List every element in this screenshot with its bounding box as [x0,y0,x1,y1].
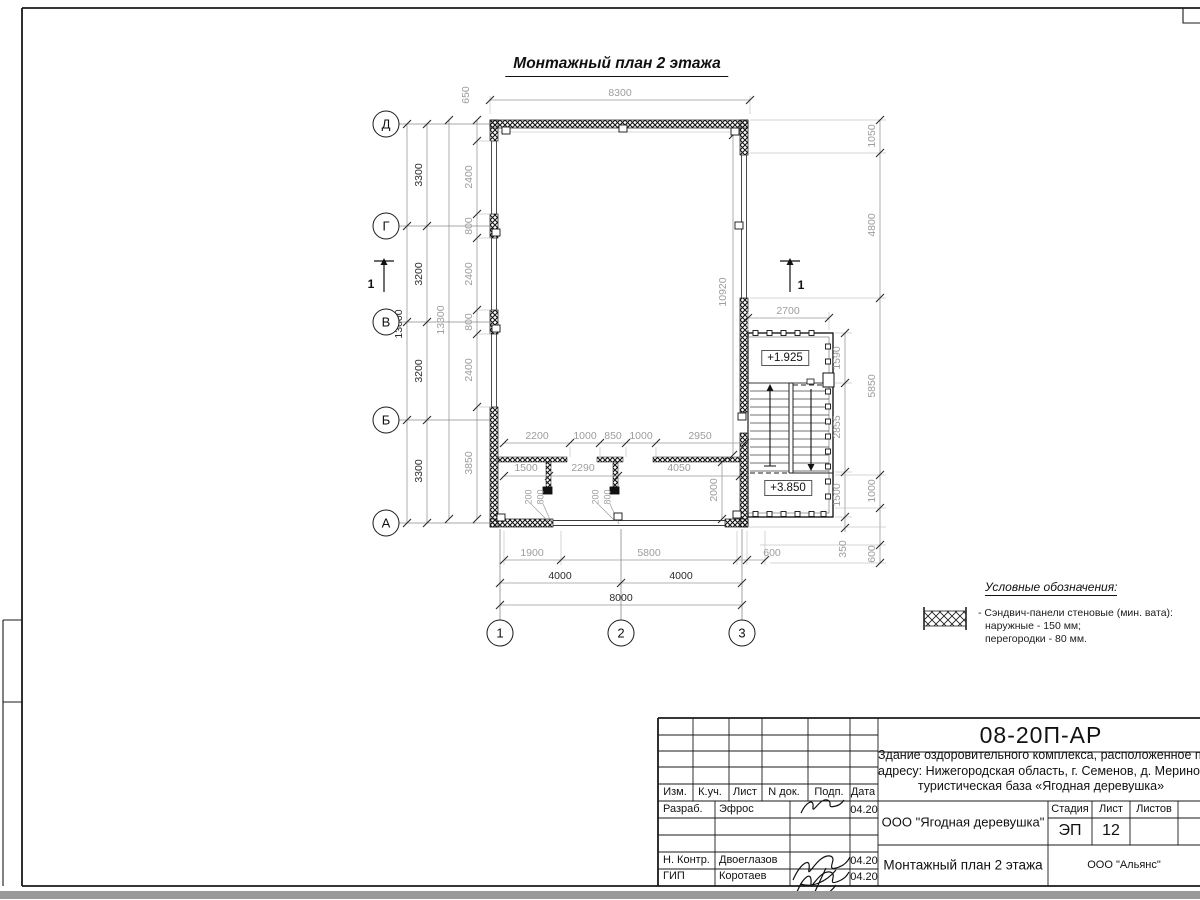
dim-label: 4050 [667,463,690,474]
dim-label: 2400 [464,262,475,285]
titleblock-header-cell: Дата [851,786,875,798]
description-line: адресу: Нижегородская область, г. Семено… [878,764,1200,780]
dim-label: 600 [763,548,781,559]
dim-label: 200 [592,489,601,504]
axis-bubble-left: А [373,510,400,537]
titleblock-description: Здание оздоровительного комплекса, распо… [878,748,1200,795]
legend-item: - Сэндвич-панели стеновые (мин. вата): [978,607,1173,619]
titleblock-name: Эфрос [719,803,754,815]
titleblock-role: Разраб. [663,803,703,815]
description-line: туристическая база «Ягодная деревушка» [878,779,1200,795]
dim-label: 1000 [573,431,596,442]
dim-label: 2400 [464,358,475,381]
legend-title: Условные обозначения: [985,580,1117,596]
titleblock-name: Двоеглазов [719,854,777,866]
dim-label: 1050 [867,124,878,147]
dim-label: 2400 [464,165,475,188]
titleblock-stage-label: Лист [1099,803,1123,815]
dim-label: 1000 [867,479,878,502]
axis-bubble-left: Д [373,111,400,138]
page-edge-strip [0,891,1200,899]
drawing-sheet: Монтажный план 2 этажа 83006502400800240… [0,0,1200,900]
axis-bubble-left: Г [373,213,400,240]
legend-item-3: перегородки - 80 мм. [985,633,1087,645]
dim-label: 200 [525,489,534,504]
dim-label: 8000 [609,593,632,604]
dim-label: 8300 [608,88,631,99]
dim-label: 3200 [414,359,425,382]
titleblock-header-cell: Изм. [663,786,687,798]
dim-label: 800 [464,313,475,331]
level-label-upper: +1.925 [761,350,809,366]
dim-label: 2700 [776,306,799,317]
dim-label: 2000 [709,478,720,501]
titleblock-header-cell: N док. [768,786,799,798]
axis-bubble-bottom: 2 [608,620,635,647]
dim-label: 3300 [414,163,425,186]
signatures [793,800,850,898]
doc-title: Монтажный план 2 этажа [883,858,1042,873]
titleblock-date: 04.20 [850,871,878,883]
dim-label: 2855 [832,415,843,438]
titleblock-date: 04.20 [850,855,878,867]
level-label-lower: +3.850 [764,480,812,496]
client-org: ООО "Ягодная деревушка" [882,815,1045,830]
dim-label: 10920 [718,277,729,306]
axis-bubble-bottom: 1 [487,620,514,647]
axis-bubble-left: В [373,309,400,336]
sheet-number: 12 [1102,822,1120,840]
dim-label: 4000 [548,571,571,582]
section-mark-label: 1 [368,277,375,291]
dim-label: 1500 [514,463,537,474]
dim-label: 800 [537,489,546,504]
dim-label: 4000 [669,571,692,582]
axis-bubble-bottom: 3 [729,620,756,647]
stage-value: ЭП [1059,822,1082,840]
dim-label: 1000 [629,431,652,442]
dim-label: 3200 [414,262,425,285]
legend-item-2: наружные - 150 мм; [985,620,1081,632]
description-line: Здание оздоровительного комплекса, распо… [878,748,1200,764]
titleblock-stage-label: Листов [1136,803,1172,815]
dim-label: 2290 [571,463,594,474]
titleblock-stage-label: Стадия [1051,803,1089,815]
section-mark-label: 1 [798,278,805,292]
legend-hatch-sample [924,607,966,630]
dim-label: 4800 [867,213,878,236]
titleblock-header-cell: Лист [733,786,757,798]
dim-label: 2950 [688,431,711,442]
dim-label: 1590 [832,346,843,369]
dim-label: 650 [461,86,472,104]
titleblock-role: Н. Контр. [663,854,710,866]
dim-label: 850 [604,431,622,442]
dim-label: 13300 [436,305,447,334]
dim-label: 1900 [520,548,543,559]
dim-label: 3850 [464,451,475,474]
titleblock-role: ГИП [663,870,685,882]
dim-label: 350 [838,540,849,558]
titleblock-header-cell: К.уч. [698,786,722,798]
titleblock-header-cell: Подп. [814,786,843,798]
contractor-org: ООО "Альянс" [1087,859,1161,871]
dim-label: 5850 [867,374,878,397]
dim-label: 800 [464,217,475,235]
dim-label: 600 [867,545,878,563]
section-marks [374,258,800,292]
dim-label: 3300 [414,459,425,482]
titleblock-code: 08-20П-АР [878,722,1200,749]
dim-label: 1500 [832,483,843,506]
titleblock-name: Коротаев [719,870,767,882]
dim-label: 5800 [637,548,660,559]
dim-label: 800 [604,489,613,504]
dim-label: 2200 [525,431,548,442]
axis-bubble-left: Б [373,407,400,434]
titleblock-date: 04.20 [850,804,878,816]
plan-title: Монтажный план 2 этажа [505,55,728,77]
